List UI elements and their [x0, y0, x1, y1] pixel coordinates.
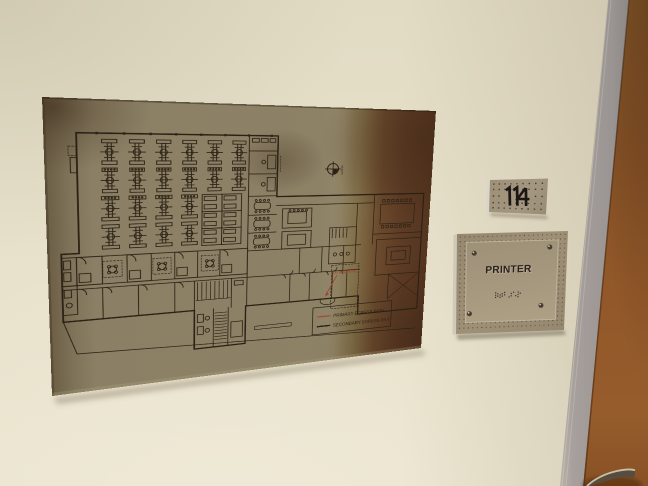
svg-text:PRINTER: PRINTER	[485, 264, 532, 276]
svg-text:NORTH: NORTH	[341, 165, 344, 175]
